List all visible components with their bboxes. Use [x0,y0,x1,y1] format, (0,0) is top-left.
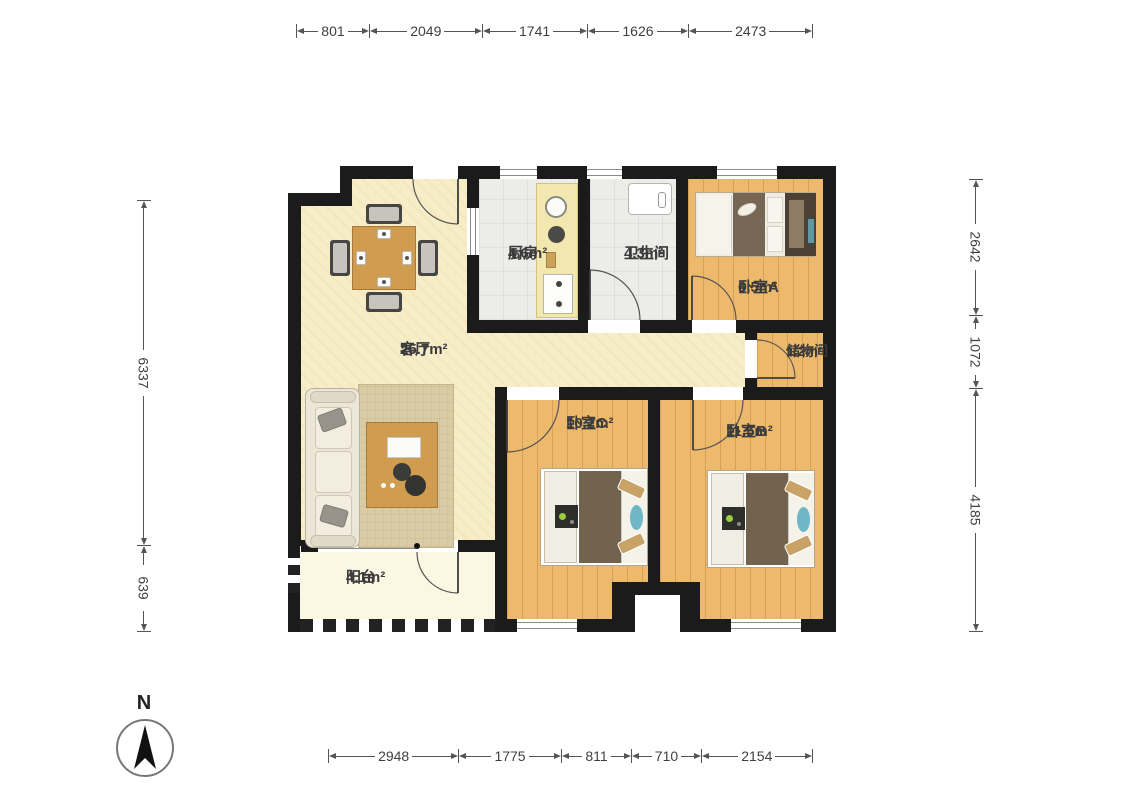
dim-value: 1741 [516,23,553,39]
dining-chair [330,240,350,276]
floor-plan-page: 801 2049 1741 1626 2473 2948 1775 811 71… [0,0,1125,800]
tv-light [559,513,566,520]
room-area: 11.5m² [726,422,773,442]
dining-chair [366,292,402,312]
bed-pillow [767,226,783,252]
teapot [405,475,426,496]
kitchen-window [500,166,537,179]
sofa-armrest [310,535,356,547]
dim-segment: 710 [631,749,700,763]
wall-hall-top [467,320,836,333]
dimension-col-left: 6337 639 [136,200,151,632]
stove [543,274,573,314]
balcony-floor [300,552,495,619]
dim-value: 2154 [738,748,775,764]
dim-segment: 2948 [328,749,458,763]
dining-set [328,202,440,314]
headboard [785,193,816,256]
wall-kitchen-left [467,179,479,333]
dim-segment: 801 [296,24,369,38]
wall-bathroom-bedroom-a [676,179,688,333]
place-setting [377,277,391,287]
dim-segment: 1626 [587,24,689,38]
storage-door-opening [745,340,757,378]
bed-bedroom-c [540,468,648,566]
dimension-col-right: 2642 1072 4185 [968,179,983,632]
coffee-table [366,422,438,508]
wall-living-balcony-right [458,540,507,552]
washing-machine [628,183,672,215]
sofa-cushion [315,451,352,493]
tray [387,437,421,458]
north-label: N [116,692,172,715]
bed-bedroom-a [695,192,815,257]
dim-value: 2642 [968,232,984,263]
place-setting [402,251,412,265]
dim-segment: 1072 [969,315,983,388]
cup [381,483,386,488]
place-setting [356,251,366,265]
cup [390,483,395,488]
dim-segment: 2154 [701,749,813,763]
sink [545,196,567,218]
dim-value: 1072 [968,336,984,367]
washer-panel [658,192,666,208]
floor-plan: 客厅 25.7m² 厨房 4.6m² 卫生间 4.3m² 卧室A 6.5m² 储… [288,166,836,632]
shaft-opening [635,595,680,632]
tv [555,505,578,528]
bedroom-c-window [517,619,577,632]
dim-segment: 2642 [969,179,983,315]
bedroom-a-door-opening [692,320,736,333]
dim-value: 6337 [136,357,152,388]
burner [556,301,562,307]
wall-kitchen-bathroom [578,179,590,333]
bedroom-a-window [717,166,777,179]
teal-pillow [797,507,810,532]
dim-value: 639 [136,577,152,600]
sofa-armrest [310,391,356,403]
compass: N [116,692,172,777]
compass-circle [116,719,174,777]
dimension-row-bottom: 2948 1775 811 710 2154 [328,749,813,764]
burner [556,281,562,287]
bed-sheet [698,195,732,254]
bed-blanket [746,473,788,565]
dim-value: 811 [582,748,610,764]
place-setting [377,229,391,239]
wall-left [288,193,301,546]
dim-segment: 639 [137,545,151,632]
dim-value: 1626 [619,23,656,39]
bedroom-b-window [731,619,801,632]
dining-chair [418,240,438,276]
bathroom-window [587,166,622,179]
room-area: 4.1m² [346,568,385,588]
wall-bedroom-c-left [495,387,507,632]
dim-value: 1775 [491,748,528,764]
dim-segment: 811 [561,749,632,763]
kitchen-sliding-door [467,208,479,255]
bathroom-door-opening [588,320,640,333]
bed-bedroom-b [707,470,815,568]
dim-segment: 1741 [482,24,587,38]
teal-pillow [630,505,643,530]
headboard-inset [789,200,804,248]
dining-chair [366,204,402,224]
room-area: 1.2m² [786,342,823,360]
balcony-side-glass [288,558,300,593]
dim-segment: 1775 [458,749,560,763]
bedroom-b-door-opening [693,387,743,400]
dim-value: 4185 [968,495,984,526]
tv-dot [570,520,574,524]
sofa [305,388,360,548]
north-arrow-icon [118,721,172,775]
room-area: 4.3m² [624,244,663,264]
dim-segment: 2473 [688,24,813,38]
room-area: 25.7m² [400,340,448,360]
dim-value: 801 [318,23,347,39]
bed-pillow [767,197,783,223]
dim-segment: 6337 [137,200,151,545]
dim-value: 2948 [375,748,412,764]
room-area: 4.6m² [508,244,547,264]
cutting-board [546,252,556,268]
bedroom-c-door-opening [507,387,559,400]
tv-light [726,515,733,522]
tv [722,507,745,530]
dim-segment: 4185 [969,388,983,632]
balcony-glass-wall [300,619,495,632]
dim-value: 710 [652,748,681,764]
cooking-pot [548,226,565,243]
dim-value: 2049 [407,23,444,39]
entry-door-opening [413,166,458,179]
tv-dot [737,522,741,526]
teal-accent [808,219,814,243]
bed-blanket [579,471,621,563]
dim-segment: 2049 [369,24,482,38]
room-area: 10.2m² [566,414,614,434]
room-area: 6.5m² [738,278,777,298]
dim-value: 2473 [732,23,769,39]
dimension-row-top: 801 2049 1741 1626 2473 [296,24,813,39]
